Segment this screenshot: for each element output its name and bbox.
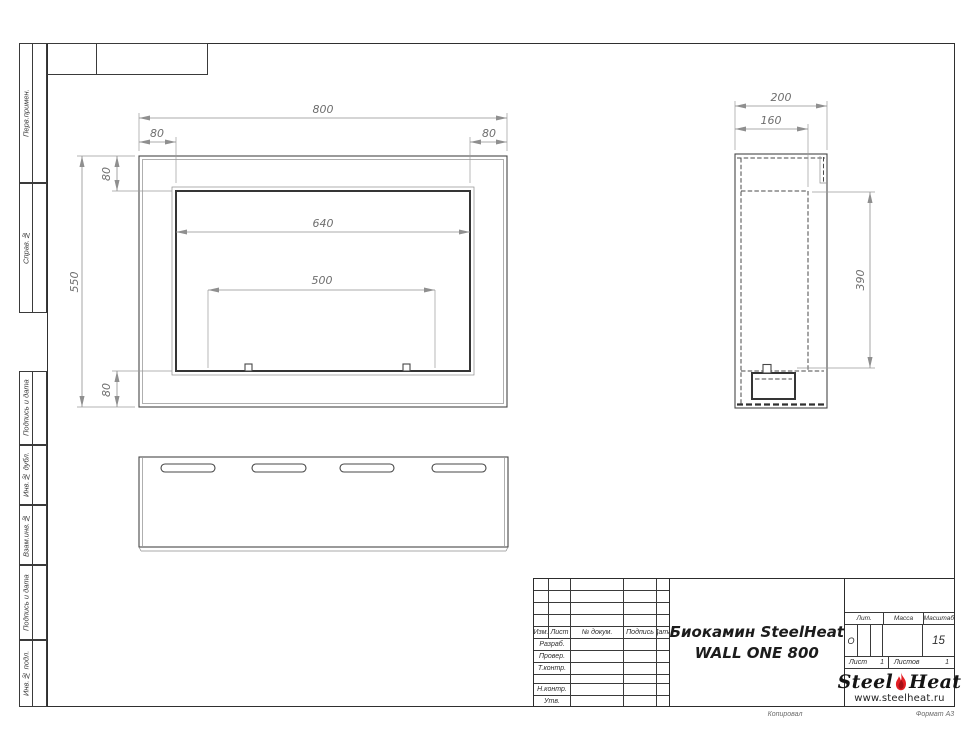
left-strip-cell-vzaminv: Взам.инв.№ (19, 505, 47, 565)
col-header-izm: Изм. (534, 627, 549, 639)
sheet-row: Лист 1 Листов 1 (845, 657, 954, 669)
row-label-prover: Провер. (534, 651, 571, 663)
tb-cell (571, 663, 624, 675)
sheets-cell: Листов 1 (889, 657, 954, 668)
tb-cell (571, 639, 624, 651)
tb-cell (549, 603, 571, 615)
tb-cell (534, 579, 549, 591)
copy-note: Копировал (740, 711, 830, 718)
left-strip-cell-podpis2: Подпись и дата (19, 565, 47, 640)
col-header-sign: Подпись (624, 627, 657, 639)
left-strip-label: Справ.№ (20, 184, 33, 312)
lit-value: О (845, 625, 858, 656)
tb-cell (549, 579, 571, 591)
tb-cell (657, 663, 669, 675)
tb-cell (549, 615, 571, 627)
tb-cell (624, 675, 657, 684)
col-header-doc: № докум. (571, 627, 624, 639)
lit-label: Лит. (845, 613, 884, 624)
logo-row: Steel Heat (838, 671, 962, 693)
tb-cell (624, 579, 657, 591)
flame-icon (893, 672, 909, 693)
tb-cell (571, 696, 624, 706)
tb-cell (534, 603, 549, 615)
tb-cell (624, 639, 657, 651)
tb-cell (624, 696, 657, 706)
format-note: Формат А3 (890, 711, 970, 718)
lit-mass-scale-values: О 15 (845, 625, 954, 657)
row-label-utv: Утв. (534, 696, 571, 706)
sheet-label: Лист (849, 659, 867, 666)
row-label-razrab: Разраб. (534, 639, 571, 651)
designation-cell (845, 579, 954, 613)
col-header-date: Дата (657, 627, 669, 639)
logo-steel-text: Steel (838, 671, 893, 693)
tb-cell (571, 684, 624, 696)
tb-cell (571, 651, 624, 663)
left-strip-cell-pervprimen: Перв.примен. (19, 43, 47, 183)
title-block-name-cell: Биокамин SteelHeat WALL ONE 800 (670, 579, 845, 706)
sheets-label: Листов (894, 659, 920, 666)
tb-cell (571, 579, 624, 591)
row-label-nkontr: Н.контр. (534, 684, 571, 696)
company-logo: Steel Heat www.steelheat.ru (845, 669, 954, 706)
tb-cell (657, 684, 669, 696)
title-block-right-section: Лит. Масса Масштаб О 15 Лист 1 Листов 1 (845, 579, 954, 706)
tb-cell (657, 696, 669, 706)
tb-cell (571, 591, 624, 603)
row-label-tkontr: Т.контр. (534, 663, 571, 675)
scale-value: 15 (923, 625, 954, 656)
lit-mass-scale-header: Лит. Масса Масштаб (845, 613, 954, 625)
left-strip-cell-invpodl: Инв.№ подл. (19, 640, 47, 707)
tb-cell (624, 663, 657, 675)
lit-cell-3 (871, 625, 883, 656)
tb-cell (534, 675, 571, 684)
left-strip-label: Взам.инв.№ (20, 506, 33, 564)
logo-heat-text: Heat (909, 671, 961, 693)
left-strip-label: Перв.примен. (20, 44, 33, 182)
left-strip-label: Подпись и дата (20, 566, 33, 639)
tb-cell (624, 615, 657, 627)
mass-value (883, 625, 923, 656)
tb-cell (657, 603, 669, 615)
tb-cell (534, 615, 549, 627)
tb-cell (657, 639, 669, 651)
tb-cell (534, 591, 549, 603)
lit-cell-2 (858, 625, 871, 656)
sheet-cell: Лист 1 (845, 657, 889, 668)
title-block-revision-table: Изм. Лист № докум. Подпись Дата Разраб. … (534, 579, 670, 706)
logo-url: www.steelheat.ru (854, 693, 944, 704)
tb-cell (624, 603, 657, 615)
left-strip-label: Инв.№ подл. (20, 641, 33, 706)
sheet-number: 1 (880, 659, 884, 666)
left-strip-cell-podpis1: Подпись и дата (19, 371, 47, 445)
tb-cell (571, 615, 624, 627)
tb-cell (657, 615, 669, 627)
scale-label: Масштаб (924, 613, 954, 624)
drawing-sheet: .ln1{fill:none;stroke:#8e8e8e;stroke-wid… (0, 0, 970, 749)
tb-cell (571, 603, 624, 615)
tb-cell (657, 591, 669, 603)
tb-cell (549, 591, 571, 603)
left-strip-cell-sprav: Справ.№ (19, 183, 47, 313)
tb-cell (624, 684, 657, 696)
document-title-line2: WALL ONE 800 (695, 644, 819, 662)
title-block: Изм. Лист № докум. Подпись Дата Разраб. … (533, 578, 955, 707)
top-left-stamp-box (46, 43, 208, 75)
left-strip-label: Подпись и дата (20, 372, 33, 444)
tb-cell (657, 651, 669, 663)
tb-cell (657, 579, 669, 591)
document-title-line1: Биокамин SteelHeat (670, 623, 844, 641)
tb-cell (624, 591, 657, 603)
left-strip-cell-invdubl: Инв.№ дубл. (19, 445, 47, 505)
mass-label: Масса (884, 613, 923, 624)
left-strip-label: Инв.№ дубл. (20, 446, 33, 504)
tb-cell (571, 675, 624, 684)
col-header-list: Лист (549, 627, 571, 639)
tb-cell (657, 675, 669, 684)
tb-cell (624, 651, 657, 663)
sheets-total: 1 (945, 659, 949, 666)
stamp-box-divider (96, 44, 97, 74)
